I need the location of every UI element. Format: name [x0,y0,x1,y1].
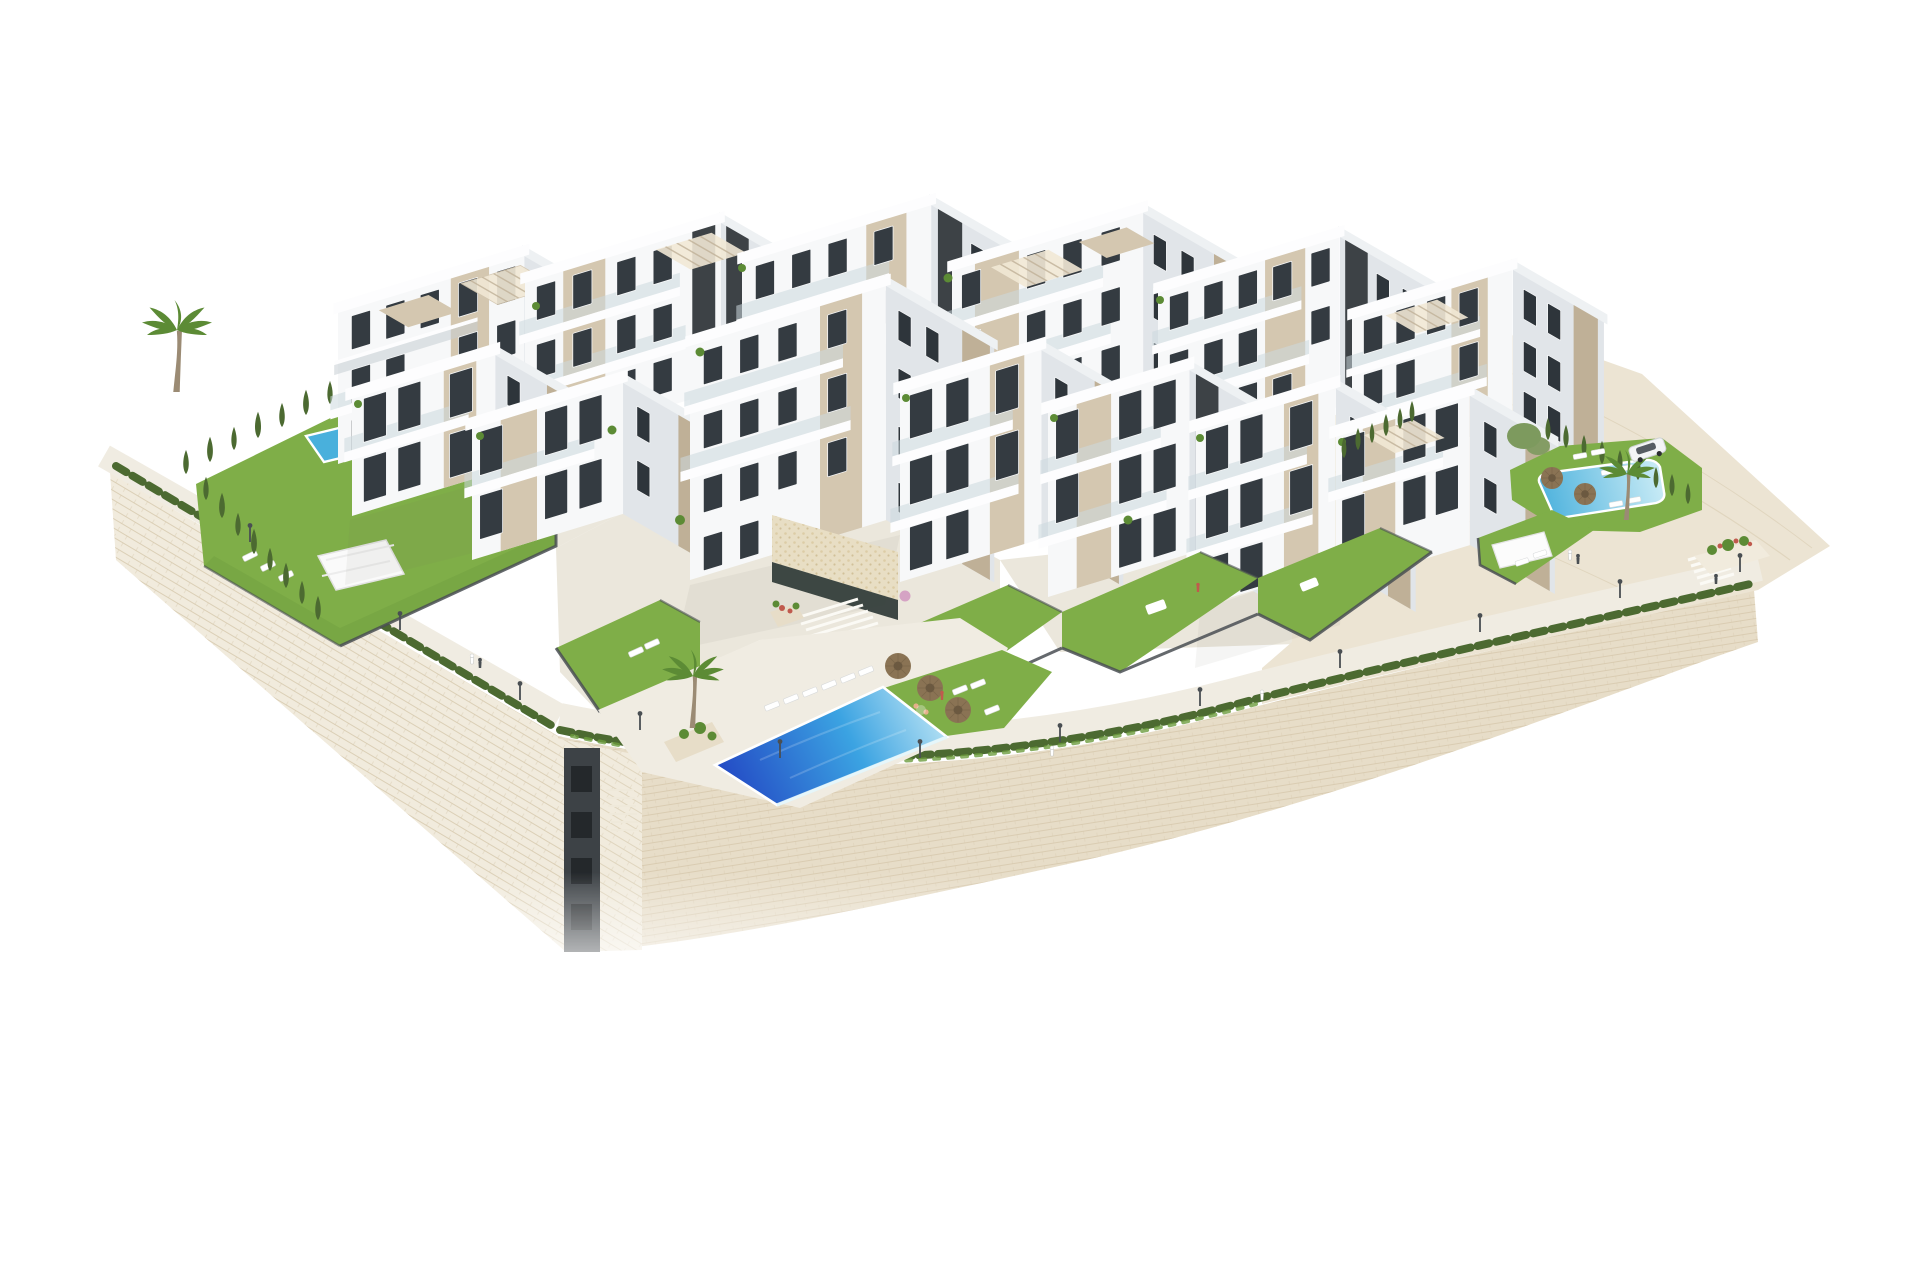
render-canvas [0,0,1920,1280]
architectural-render [0,0,1920,1280]
palm-tree-left [142,300,212,392]
bottom-fade [0,872,1920,1280]
